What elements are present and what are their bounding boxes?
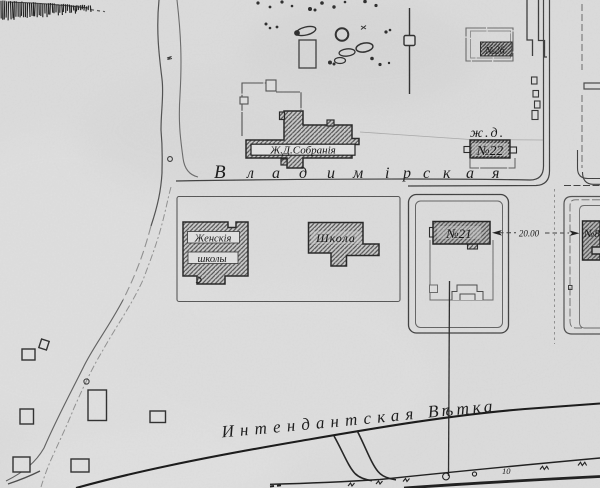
svg-text:к: к xyxy=(443,165,451,182)
svg-text:Ж.Д.Собранія: Ж.Д.Собранія xyxy=(269,145,336,157)
svg-text:а: а xyxy=(466,165,474,182)
svg-text:с: с xyxy=(423,165,430,182)
svg-text:№8: №8 xyxy=(583,228,600,240)
svg-text:№22: №22 xyxy=(476,143,503,158)
svg-text:20.00: 20.00 xyxy=(519,229,540,239)
svg-text:р: р xyxy=(402,165,411,182)
svg-text:10: 10 xyxy=(502,466,511,476)
svg-text:Женскія: Женскія xyxy=(194,234,232,245)
svg-text:и: и xyxy=(327,165,335,182)
svg-text:і: і xyxy=(385,165,389,182)
svg-text:а: а xyxy=(272,165,280,182)
svg-text:школы: школы xyxy=(197,254,226,265)
svg-text:л: л xyxy=(246,165,254,182)
svg-text:д: д xyxy=(299,165,307,182)
svg-text:я: я xyxy=(491,165,499,182)
svg-text:№21: №21 xyxy=(445,226,471,241)
svg-text:Школа: Школа xyxy=(315,231,356,245)
svg-text:№26: №26 xyxy=(484,46,504,57)
svg-text:м: м xyxy=(352,165,363,182)
svg-text:ж.д.: ж.д. xyxy=(470,126,505,141)
svg-text:В: В xyxy=(214,162,226,183)
